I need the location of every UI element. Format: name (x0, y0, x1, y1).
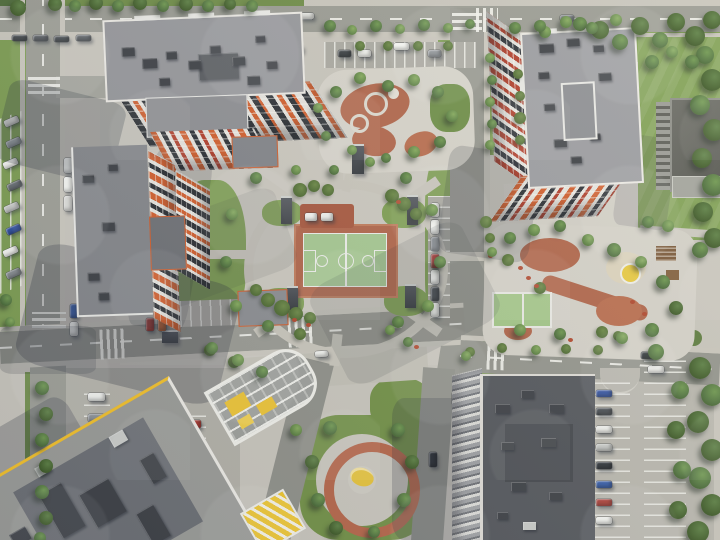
tree (370, 20, 382, 32)
tree (323, 421, 337, 435)
tree (648, 344, 664, 360)
tree (250, 172, 262, 184)
tree (443, 23, 453, 33)
tree (701, 69, 720, 91)
tree (610, 14, 622, 26)
tree (220, 256, 232, 268)
tree (39, 511, 53, 525)
tree (290, 424, 302, 436)
tree (330, 86, 342, 98)
tree (395, 24, 405, 34)
tree (586, 22, 598, 34)
tree (701, 384, 720, 406)
tree (422, 300, 434, 312)
tree (701, 494, 720, 516)
tree-layer (0, 0, 720, 540)
tree (487, 119, 497, 129)
tree (432, 86, 444, 98)
tree (321, 131, 331, 141)
tree (487, 247, 497, 257)
aerial-render-image (0, 0, 720, 540)
tree (689, 467, 711, 489)
tree (365, 157, 375, 167)
tree (667, 421, 685, 439)
tree (616, 332, 628, 344)
tree (232, 354, 244, 366)
tree (554, 220, 566, 232)
tree (434, 136, 446, 148)
tree (157, 0, 169, 12)
tree (291, 165, 301, 175)
tree (692, 242, 708, 258)
tree (612, 34, 628, 50)
tree (0, 294, 12, 306)
tree (671, 381, 689, 399)
tree (329, 521, 343, 535)
tree (485, 140, 495, 150)
tree (408, 146, 420, 158)
tree (504, 232, 516, 244)
tree (403, 337, 413, 347)
tree (39, 459, 53, 473)
tree (656, 275, 670, 289)
tree (487, 75, 497, 85)
tree (397, 493, 411, 507)
tree (645, 55, 659, 69)
tree (305, 455, 319, 469)
tree (226, 208, 238, 220)
tree (702, 174, 720, 196)
tree (666, 46, 678, 58)
tree (631, 17, 649, 35)
tree (446, 110, 458, 122)
tree (554, 328, 566, 340)
tree (35, 433, 49, 447)
tree (461, 351, 471, 361)
tree (202, 0, 214, 12)
tree (514, 324, 526, 336)
tree (329, 165, 339, 175)
tree (89, 0, 103, 10)
tree (224, 0, 236, 10)
tree (685, 55, 699, 69)
tree (48, 0, 62, 11)
tree (408, 74, 420, 86)
tree (509, 22, 521, 34)
tree (652, 32, 668, 48)
tree (368, 526, 380, 538)
tree (607, 243, 621, 257)
tree (112, 0, 124, 12)
tree (246, 0, 258, 12)
tree (179, 0, 193, 11)
tree (582, 234, 594, 246)
tree (354, 72, 366, 84)
tree (635, 256, 647, 268)
tree (39, 407, 53, 421)
tree (426, 204, 438, 216)
tree (528, 224, 540, 236)
tree (311, 493, 325, 507)
tree (534, 20, 546, 32)
tree (418, 19, 430, 31)
tree (262, 320, 274, 332)
tree (133, 0, 147, 10)
tree (642, 216, 654, 228)
tree (693, 202, 713, 222)
tree (382, 80, 394, 92)
tree (703, 119, 720, 141)
tree (669, 501, 687, 519)
tree (347, 25, 357, 35)
tree (465, 19, 475, 29)
tree (256, 366, 268, 378)
tree (687, 411, 709, 433)
tree (313, 103, 323, 113)
tree (34, 532, 46, 540)
tree (692, 148, 712, 168)
tree (690, 95, 710, 115)
tree (35, 485, 49, 499)
tree (667, 13, 685, 31)
tree (560, 16, 572, 28)
tree (324, 20, 336, 32)
tree (531, 345, 541, 355)
tree (662, 220, 674, 232)
tree (10, 0, 26, 16)
tree (669, 301, 683, 315)
tree (689, 357, 711, 379)
tree (405, 455, 419, 469)
tree (703, 11, 720, 29)
tree (485, 97, 495, 107)
tree (645, 323, 659, 337)
tree (573, 17, 587, 31)
tree (35, 381, 49, 395)
tree (685, 26, 705, 46)
tree (5, 317, 15, 327)
tree (347, 145, 357, 155)
tree (485, 53, 495, 63)
tree (69, 0, 81, 12)
tree (673, 461, 691, 479)
tree (230, 300, 242, 312)
tree (687, 521, 709, 540)
tree (400, 172, 412, 184)
tree (434, 256, 446, 268)
tree (391, 423, 405, 437)
tree (701, 439, 720, 461)
tree (206, 342, 218, 354)
tree (385, 325, 395, 335)
tree (381, 153, 391, 163)
